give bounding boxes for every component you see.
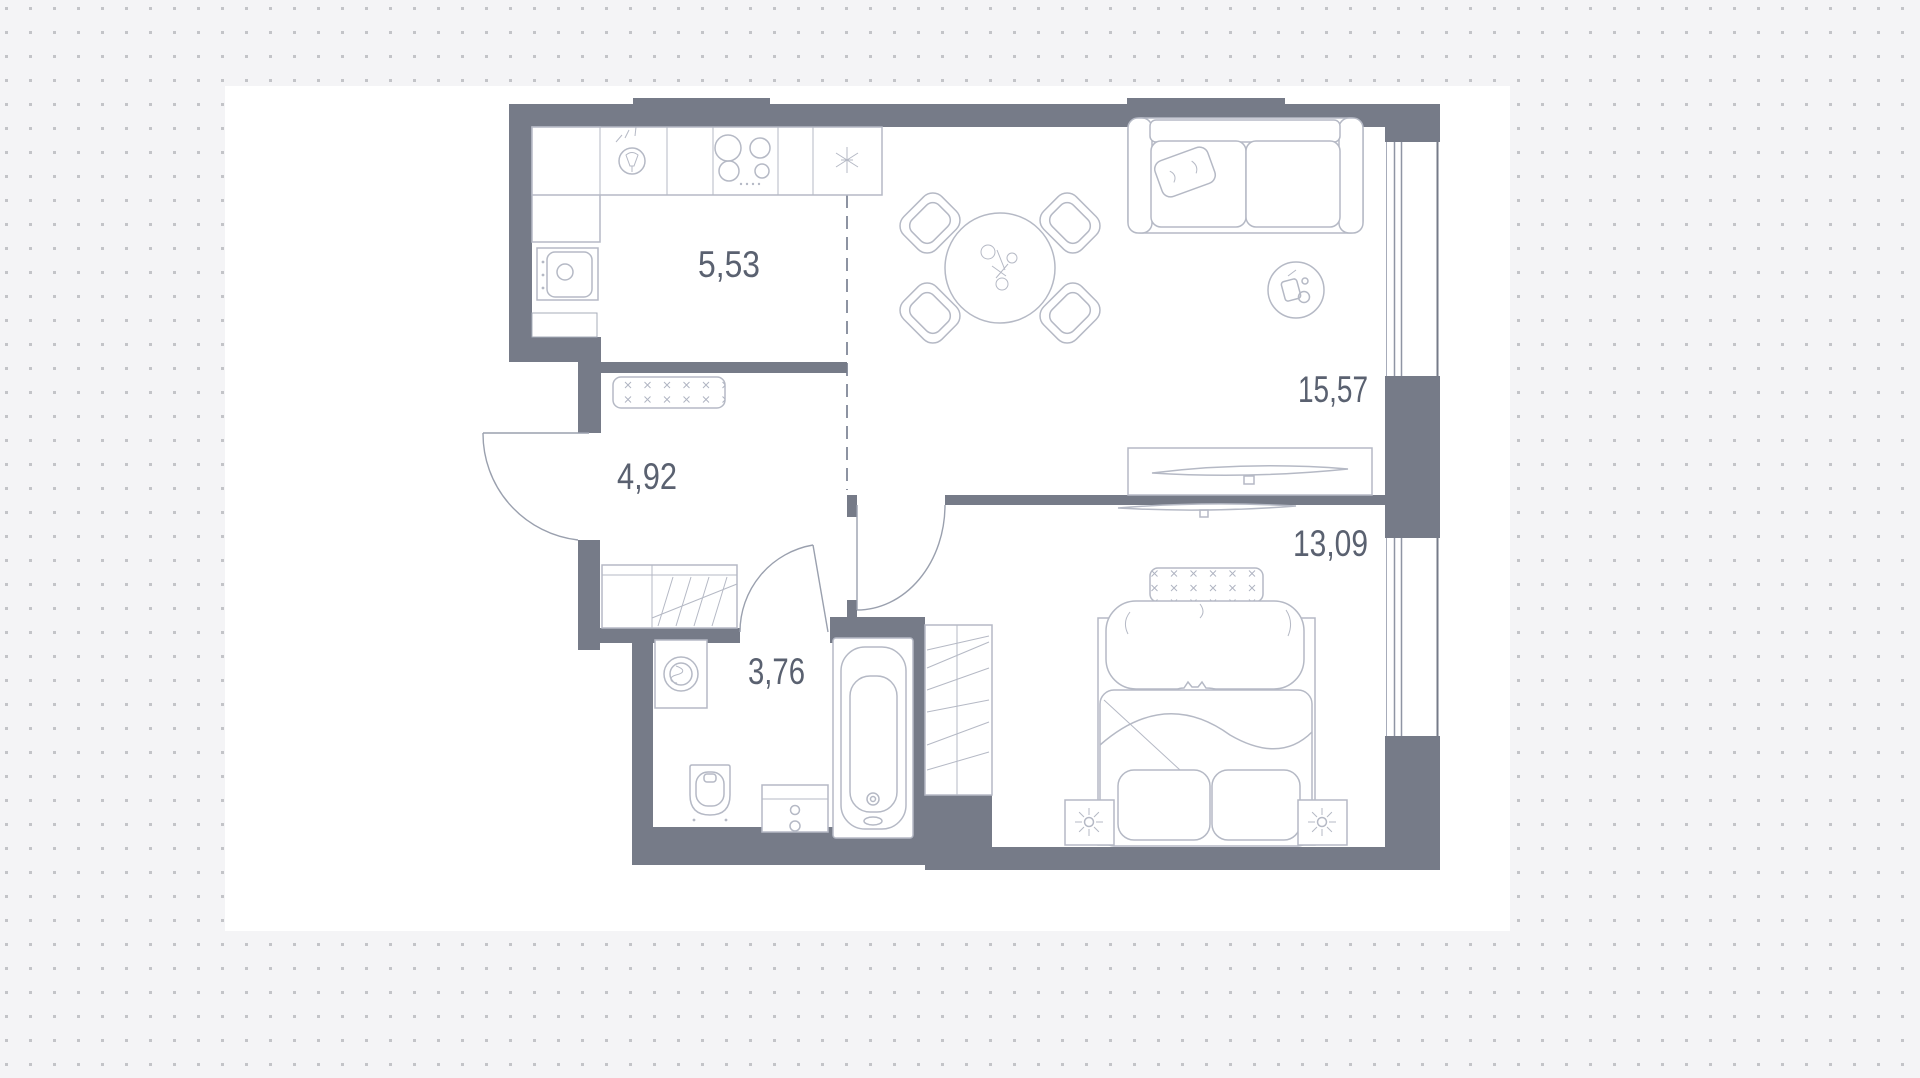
bedroom-bench-icon: [1150, 568, 1263, 602]
sofa-icon: [1128, 118, 1363, 233]
hall-wardrobe-icon: [602, 565, 737, 628]
built-in-closet-icon: [925, 625, 992, 795]
room-area-label-kitchen: 5,53: [698, 244, 760, 285]
dining-table-icon: [945, 213, 1055, 323]
kitchen-counter-top: [532, 127, 882, 195]
hall-bench-icon: [613, 377, 725, 408]
bathtub-icon: [833, 638, 913, 838]
double-bed-icon: [1098, 601, 1315, 846]
room-area-label-living: 15,57: [1298, 369, 1368, 410]
floor-plan-canvas: 5,53 4,92 15,57 13,09 3,76: [0, 0, 1920, 1078]
kitchen-sink-icon: [537, 248, 598, 300]
room-area-label-hallway: 4,92: [617, 456, 677, 497]
floor-plan-page: 5,53 4,92 15,57 13,09 3,76: [0, 0, 1920, 1078]
room-area-label-bedroom: 13,09: [1293, 523, 1368, 564]
room-area-label-bathroom: 3,76: [748, 651, 805, 692]
duct-niche: [532, 313, 597, 337]
tv-console-icon: [1128, 448, 1372, 495]
vanity-sink-icon: [762, 785, 828, 832]
washing-machine-icon: [655, 640, 707, 708]
